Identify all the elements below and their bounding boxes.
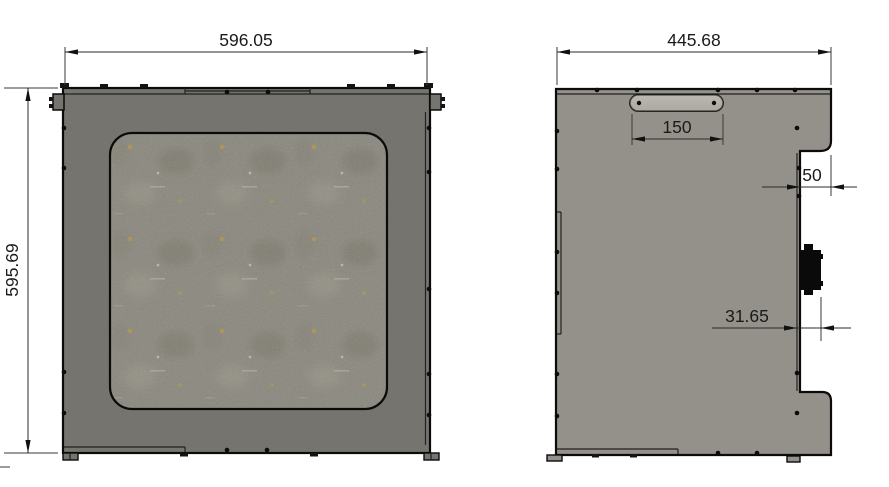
side-width-dimension: 445.68 [557,30,831,85]
side-panel-view: 445.68 150 50 31.65 [547,30,857,462]
side-step-label: 50 [802,165,822,185]
front-width-dimension: 596.05 [65,30,427,85]
front-height-label: 595.69 [2,243,22,297]
arrowhead-down [25,440,30,453]
front-corner-clip-right [430,94,445,110]
technical-drawing: 596.05 595.69 [0,0,889,487]
front-height-dimension: 595.69 [0,88,58,467]
side-handle-slot [630,95,723,111]
side-handle-label: 150 [662,117,691,137]
arrowhead-right [818,49,831,54]
arrowhead-right [414,49,427,54]
front-corner-clip-left [49,94,64,110]
front-width-label: 596.05 [219,30,273,50]
arrowhead-left [65,49,78,54]
arrowhead-left [557,49,570,54]
handle-hole-right [712,101,716,105]
front-panel-view: 596.05 595.69 [0,30,445,467]
handle-hole-left [637,101,641,105]
arrowhead-left [831,184,844,189]
side-width-label: 445.68 [667,30,721,50]
side-connector-label: 31.65 [725,306,769,326]
side-panel-face [556,89,831,455]
arrowhead-up [25,88,30,101]
cad-drawing-canvas: 596.05 595.69 [0,0,889,487]
side-connector-block [800,244,823,295]
arrowhead-left [821,325,834,330]
front-mesh-window [110,133,387,409]
